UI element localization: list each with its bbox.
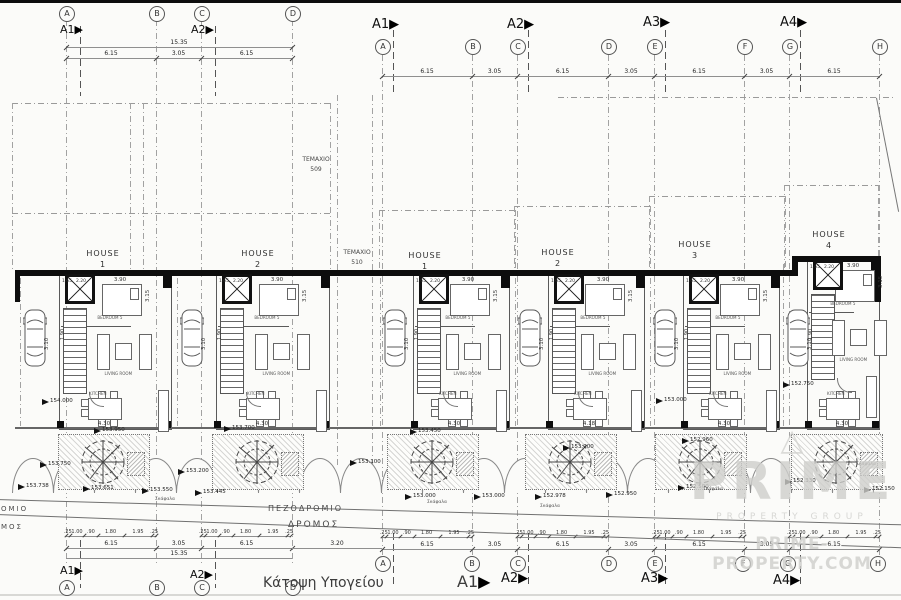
plot-dashed-line: [784, 185, 785, 268]
room-dim: 3.10: [675, 338, 681, 350]
dimension-label-small: 1.80: [421, 531, 432, 536]
room-label-living: LIVING ROOM: [105, 372, 133, 377]
level-value: 153.100: [358, 459, 381, 465]
section-marker: A2▶: [191, 23, 214, 36]
room-dim: 2.20: [76, 280, 86, 285]
terrace-arch: [299, 458, 341, 493]
section-arrow-icon: ▶: [524, 17, 534, 32]
dining-chair: [595, 419, 603, 427]
room-dim: 1.65: [810, 266, 820, 271]
dining-chair: [460, 391, 468, 399]
dimension-line: [66, 548, 292, 549]
floor-plan-sheet: Κάτοψη Υπογείου A1▶ ΠΕΖΟΔΡΟΜΙΟ ΔΡΟΜΟΣ ΟΜ…: [0, 0, 901, 600]
dining-chair: [819, 399, 827, 407]
dimension-label: 6.15: [419, 69, 434, 75]
wall-pier: [57, 421, 64, 428]
dimension-label: 3.20: [329, 541, 344, 547]
plot-dashed-line: [558, 97, 893, 98]
room-dim: 1.65: [416, 280, 426, 285]
dining-chair: [566, 409, 574, 417]
plot-dashed-line: [515, 210, 516, 268]
section-marker: A1▶: [372, 17, 399, 32]
room-label-kitchen: KITCHEN: [574, 392, 592, 397]
level-flag-icon: [864, 487, 871, 493]
drawing-title-section: A1▶: [457, 572, 490, 591]
dimension-label-small: .90: [538, 531, 546, 536]
level-value: 152.150: [872, 486, 895, 492]
section-marker: A2▶: [501, 571, 528, 586]
parcel-510-name: ΤΕΜΑΧΙΟ: [332, 248, 382, 258]
dimension-label-small: 1.00: [794, 531, 805, 536]
level-flag-icon: [474, 494, 481, 500]
level-flag-icon: [678, 485, 685, 491]
room-dim: 3.15: [629, 290, 635, 302]
house-label-name: HOUSE: [400, 250, 450, 261]
room-dim: 3.10: [405, 338, 411, 350]
house-label-number: 2: [533, 258, 583, 269]
coffee-table: [464, 343, 481, 360]
level-flag-icon: [606, 492, 613, 498]
grid-bubble: D: [601, 556, 617, 572]
room-dim: 1.65: [551, 280, 561, 285]
section-line: [80, 26, 81, 96]
grid-bubble: B: [465, 39, 481, 55]
sheet-bottom-edge: [0, 594, 901, 596]
dining-chair: [110, 391, 118, 399]
plot-dashed-line: [514, 206, 650, 207]
stairs: [417, 308, 441, 394]
plot-dashed-line: [12, 213, 330, 214]
grid-bubble: B: [149, 580, 165, 596]
dimension-label-small: .25: [873, 531, 881, 536]
planter-box: [127, 452, 145, 476]
level-flag-icon: [350, 460, 357, 466]
room-label-bedroom: BEDROOM 5: [97, 316, 122, 321]
grid-bubble: E: [647, 39, 663, 55]
dining-chair: [566, 399, 574, 407]
house-label: HOUSE2: [533, 247, 583, 269]
dining-chair: [730, 419, 738, 427]
section-line: [393, 30, 394, 94]
dimension-line: [382, 537, 472, 538]
sofa: [758, 334, 771, 370]
coffee-table: [599, 343, 616, 360]
room-label-kitchen: KITCHEN: [709, 392, 727, 397]
wall-pier: [163, 276, 172, 288]
house-label-name: HOUSE: [233, 248, 283, 259]
dining-chair: [110, 419, 118, 427]
dimension-label-small: 1.00: [522, 531, 533, 536]
plot-dashed-line: [330, 103, 331, 270]
dining-chair: [848, 419, 856, 427]
dimension-label: 6.15: [691, 69, 706, 75]
dimension-label-small: .25: [150, 530, 158, 535]
grid-bubble: A: [375, 39, 391, 55]
level-value: 152.960: [690, 437, 713, 443]
dimension-label: 15.35: [169, 40, 188, 46]
dimension-label-small: .90: [810, 531, 818, 536]
bed-pillow: [863, 274, 872, 286]
section-marker: A1▶: [60, 564, 83, 577]
dimension-label: 6.15: [691, 542, 706, 548]
parking-bay-line: [650, 278, 651, 426]
level-value: 153.000: [413, 493, 436, 499]
plot-dashed-line: [649, 196, 785, 197]
room-dim: 2.20: [700, 280, 710, 285]
level-value: 153.950: [102, 427, 125, 433]
kitchen-counter: [496, 390, 507, 432]
room-label-bedroom: BEDROOM 5: [580, 316, 605, 321]
house-label-name: HOUSE: [78, 248, 128, 259]
bed-pillow: [478, 288, 487, 300]
dimension-label-small: 1.00: [206, 530, 217, 535]
dimension-label: 3.05: [623, 542, 638, 548]
dimension-line: [382, 549, 879, 550]
section-marker: A4▶: [773, 573, 800, 588]
level-flag-icon: [410, 429, 417, 435]
section-line: [528, 30, 529, 94]
room-dim: 4.30: [256, 422, 268, 428]
kitchen-counter: [158, 390, 169, 432]
level-value: 152.950: [614, 491, 637, 497]
room-dim: 3.90: [732, 278, 744, 284]
bed-pillow: [613, 288, 622, 300]
dimension-label-small: .90: [87, 530, 95, 535]
dimension-label-small: 1.95: [448, 531, 459, 536]
level-value: 153.200: [571, 444, 594, 450]
kitchen-counter: [631, 390, 642, 432]
level-value: 153.000: [482, 493, 505, 499]
section-marker: A2▶: [507, 17, 534, 32]
stairs: [687, 308, 711, 394]
house-label: HOUSE1: [400, 250, 450, 272]
dining-chair: [595, 391, 603, 399]
dining-chair: [81, 399, 89, 407]
dining-chair: [730, 391, 738, 399]
level-flag-icon: [656, 398, 663, 404]
section-marker: A3▶: [641, 571, 668, 586]
room-dim: 3.15: [146, 290, 152, 302]
parcel-509-number: 509: [290, 165, 342, 175]
wall-pier: [805, 421, 812, 428]
plot-dashed-line: [514, 206, 515, 268]
room-label-kitchen: KITCHEN: [247, 392, 265, 397]
wall-pier: [636, 276, 645, 288]
dimension-line: [66, 558, 292, 559]
tree-icon: [234, 437, 280, 487]
dimension-label-small: 1.80: [240, 530, 251, 535]
plot-dashed-line: [784, 185, 878, 186]
grid-bubble: H: [870, 556, 886, 572]
dimension-label: 6.15: [239, 541, 254, 547]
plot-dashed-line: [143, 103, 144, 270]
section-line: [800, 30, 801, 94]
boundary-wall-left: [15, 270, 20, 302]
dimension-label: 6.15: [103, 541, 118, 547]
level-value: 153.750: [48, 461, 71, 467]
house-label: HOUSE2: [233, 248, 283, 270]
grid-bubble: B: [149, 6, 165, 22]
level-flag-icon: [40, 462, 47, 468]
room-dim: 3.10: [45, 338, 51, 350]
level-flag-icon: [224, 426, 231, 432]
planter-box: [281, 452, 299, 476]
section-line: [393, 533, 394, 588]
wall-pier: [411, 421, 418, 428]
grid-bubble: B: [464, 556, 480, 572]
wall-pier: [771, 276, 780, 288]
grid-bubble: A: [59, 580, 75, 596]
grid-bubble: D: [285, 6, 301, 22]
dining-chair: [819, 409, 827, 417]
level-flag-icon: [785, 479, 792, 485]
street-label-road-cut: ΜΟΣ: [1, 523, 23, 531]
room-dim: 3.90: [847, 264, 859, 270]
section-marker: A1▶: [60, 23, 83, 36]
level-value: 153.450: [418, 428, 441, 434]
section-arrow-icon: ▶: [206, 23, 214, 36]
sofa: [297, 334, 310, 370]
dimension-label: 6.15: [419, 542, 434, 548]
section-arrow-icon: ▶: [75, 564, 83, 577]
grid-bubble: D: [601, 39, 617, 55]
wall-pier: [501, 276, 510, 288]
coffee-table: [850, 329, 867, 346]
plot-dashed-line: [372, 95, 373, 465]
section-marker: A2▶: [190, 568, 213, 581]
room-dim: 1.90: [415, 329, 420, 340]
level-flag-icon: [18, 484, 25, 490]
section-line: [665, 30, 666, 94]
bed-pillow: [287, 288, 296, 300]
room-dim: 3.90: [114, 278, 126, 284]
room-label-kitchen: KITCHEN: [89, 392, 107, 397]
plot-dashed-line: [337, 95, 338, 465]
tree-icon: [677, 437, 723, 487]
street-label-sidewalk: ΠΕΖΟΔΡΟΜΙΟ: [268, 504, 343, 513]
dimension-label: 3.05: [171, 541, 186, 547]
parking-bay-line: [515, 278, 516, 426]
grid-bubble: G: [782, 39, 798, 55]
room-label-bedroom: BEDROOM 5: [254, 316, 279, 321]
sofa: [446, 334, 459, 370]
room-dim: 4.30: [836, 422, 848, 428]
level-value: 154.000: [50, 398, 73, 404]
room-label-living: LIVING ROOM: [840, 358, 868, 363]
room-dim: 1.90: [218, 329, 223, 340]
stairs: [63, 308, 87, 394]
room-dim: 3.90: [597, 278, 609, 284]
level-value: 152.750: [791, 381, 814, 387]
level-value: 153.700: [232, 425, 255, 431]
room-dim: 4.30: [448, 422, 460, 428]
house-label: HOUSE3: [670, 239, 720, 261]
dimension-label-small: .90: [403, 531, 411, 536]
room-label-living: LIVING ROOM: [589, 372, 617, 377]
level-value: 152.978: [543, 493, 566, 499]
level-flag-icon: [83, 486, 90, 492]
grid-bubble: C: [510, 39, 526, 55]
room-dim: 2.20: [824, 266, 834, 271]
house-label-number: 2: [233, 259, 283, 270]
coffee-table: [734, 343, 751, 360]
dining-chair: [701, 399, 709, 407]
room-dim: 4.30: [718, 422, 730, 428]
sofa: [97, 334, 110, 370]
dimension-label: 15.35: [169, 551, 188, 557]
sofa: [581, 334, 594, 370]
room-dim: 1.90: [685, 329, 690, 340]
section-marker: A4▶: [780, 15, 807, 30]
dimension-label-small: .90: [675, 531, 683, 536]
stairs: [552, 308, 576, 394]
planter-note: Σκάφαλα: [856, 462, 876, 467]
planter-note: Σκάφαλα: [427, 500, 447, 505]
dimension-label: 3.05: [487, 542, 502, 548]
level-value: 153.651: [91, 485, 114, 491]
dimension-label-small: 1.95: [267, 530, 278, 535]
tree-icon: [409, 437, 455, 487]
dimension-line: [66, 47, 292, 48]
level-value: 153.200: [186, 468, 209, 474]
sofa: [488, 334, 501, 370]
level-value: 153.550: [150, 487, 173, 493]
wall-pier: [681, 421, 688, 428]
level-flag-icon: [94, 428, 101, 434]
drawing-title-section-label: A1: [457, 572, 478, 591]
room-dim: 3.15: [494, 290, 500, 302]
dining-table: [826, 398, 860, 420]
section-arrow-icon: ▶: [660, 15, 670, 30]
tree-icon: [813, 437, 859, 487]
kitchen-counter: [866, 376, 877, 418]
coffee-table: [273, 343, 290, 360]
grid-bubble: G: [780, 556, 796, 572]
house-label-number: 1: [78, 259, 128, 270]
sidewalk-edge-line: [0, 499, 901, 526]
room-dim: 1.90: [61, 329, 66, 340]
house-label-name: HOUSE: [533, 247, 583, 258]
tree-icon: [80, 437, 126, 487]
kitchen-counter: [316, 390, 327, 432]
wall-pier: [321, 276, 330, 288]
planter-box: [594, 452, 612, 476]
dimension-line: [66, 536, 156, 537]
parking-bay-line: [20, 278, 21, 426]
room-dim: 1.90: [809, 329, 814, 340]
section-marker: A3▶: [643, 15, 670, 30]
bed-pillow: [130, 288, 139, 300]
dimension-label: 6.15: [826, 69, 841, 75]
room-label-kitchen: KITCHEN: [827, 392, 845, 397]
dimension-label-small: .25: [466, 531, 474, 536]
dimension-label-small: 1.80: [105, 530, 116, 535]
coffee-table: [115, 343, 132, 360]
terrace-arch: [750, 458, 792, 493]
bed-pillow: [748, 288, 757, 300]
boundary-wall-step: [792, 256, 798, 276]
room-dim: 3.90: [271, 278, 283, 284]
room-dim: 3.15: [764, 290, 770, 302]
dimension-label-small: .25: [738, 531, 746, 536]
section-arrow-icon: ▶: [205, 568, 213, 581]
dining-chair: [460, 419, 468, 427]
dimension-label: 6.15: [555, 69, 570, 75]
planter-note: Σκάφαλα: [540, 504, 560, 509]
level-flag-icon: [682, 438, 689, 444]
stairs: [220, 308, 244, 394]
grid-bubble: F: [735, 556, 751, 572]
dimension-label-small: 1.95: [132, 530, 143, 535]
grid-bubble: C: [194, 580, 210, 596]
sofa: [874, 320, 887, 356]
section-arrow-icon: ▶: [658, 571, 668, 586]
dimension-label: 6.15: [239, 51, 254, 57]
dining-chair: [431, 409, 439, 417]
wall-pier: [214, 421, 221, 428]
dimension-label: 3.05: [487, 69, 502, 75]
room-dim: 3.15: [879, 276, 885, 288]
room-dim: 1.65: [219, 280, 229, 285]
house-label-number: 4: [804, 240, 854, 251]
level-flag-icon: [178, 469, 185, 475]
sofa: [139, 334, 152, 370]
dimension-label-small: 1.00: [387, 531, 398, 536]
dimension-line: [517, 537, 607, 538]
sofa: [832, 320, 845, 356]
level-flag-icon: [405, 494, 412, 500]
room-dim: 2.20: [565, 280, 575, 285]
room-label-kitchen: KITCHEN: [439, 392, 457, 397]
dimension-label-small: .90: [222, 530, 230, 535]
room-dim: 3.10: [202, 338, 208, 350]
level-flag-icon: [195, 490, 202, 496]
room-label-bedroom: BEDROOM 5: [830, 302, 855, 307]
wall-pier: [872, 421, 879, 428]
dimension-label-small: .25: [601, 531, 609, 536]
room-dim: 3.15: [303, 290, 309, 302]
level-value: 153.000: [664, 397, 687, 403]
sofa: [255, 334, 268, 370]
plot-dashed-line: [785, 196, 786, 268]
drawing-title: Κάτοψη Υπογείου: [263, 575, 384, 591]
grid-bubble: E: [647, 556, 663, 572]
dimension-line: [789, 537, 879, 538]
section-arrow-icon: ▶: [478, 572, 490, 591]
dining-chair: [701, 409, 709, 417]
house-label: HOUSE1: [78, 248, 128, 270]
dimension-line: [201, 536, 291, 537]
dimension-label-small: .25: [285, 530, 293, 535]
parking-bay-line: [177, 278, 178, 426]
room-label-living: LIVING ROOM: [263, 372, 291, 377]
room-label-living: LIVING ROOM: [454, 372, 482, 377]
house-label-number: 1: [400, 261, 450, 272]
dimension-label-small: 1.80: [828, 531, 839, 536]
sheet-top-edge: [0, 0, 901, 3]
room-dim: 2.20: [233, 280, 243, 285]
dining-chair: [268, 391, 276, 399]
planter-note: Σκάφαλα: [703, 487, 723, 492]
room-dim: 3.90: [462, 278, 474, 284]
planter-box: [456, 452, 474, 476]
section-arrow-icon: ▶: [75, 23, 83, 36]
dimension-label: 3.05: [623, 69, 638, 75]
dimension-label: 3.05: [171, 51, 186, 57]
planter-box: [724, 452, 742, 476]
plot-dashed-line: [650, 206, 651, 268]
room-label-living: LIVING ROOM: [724, 372, 752, 377]
